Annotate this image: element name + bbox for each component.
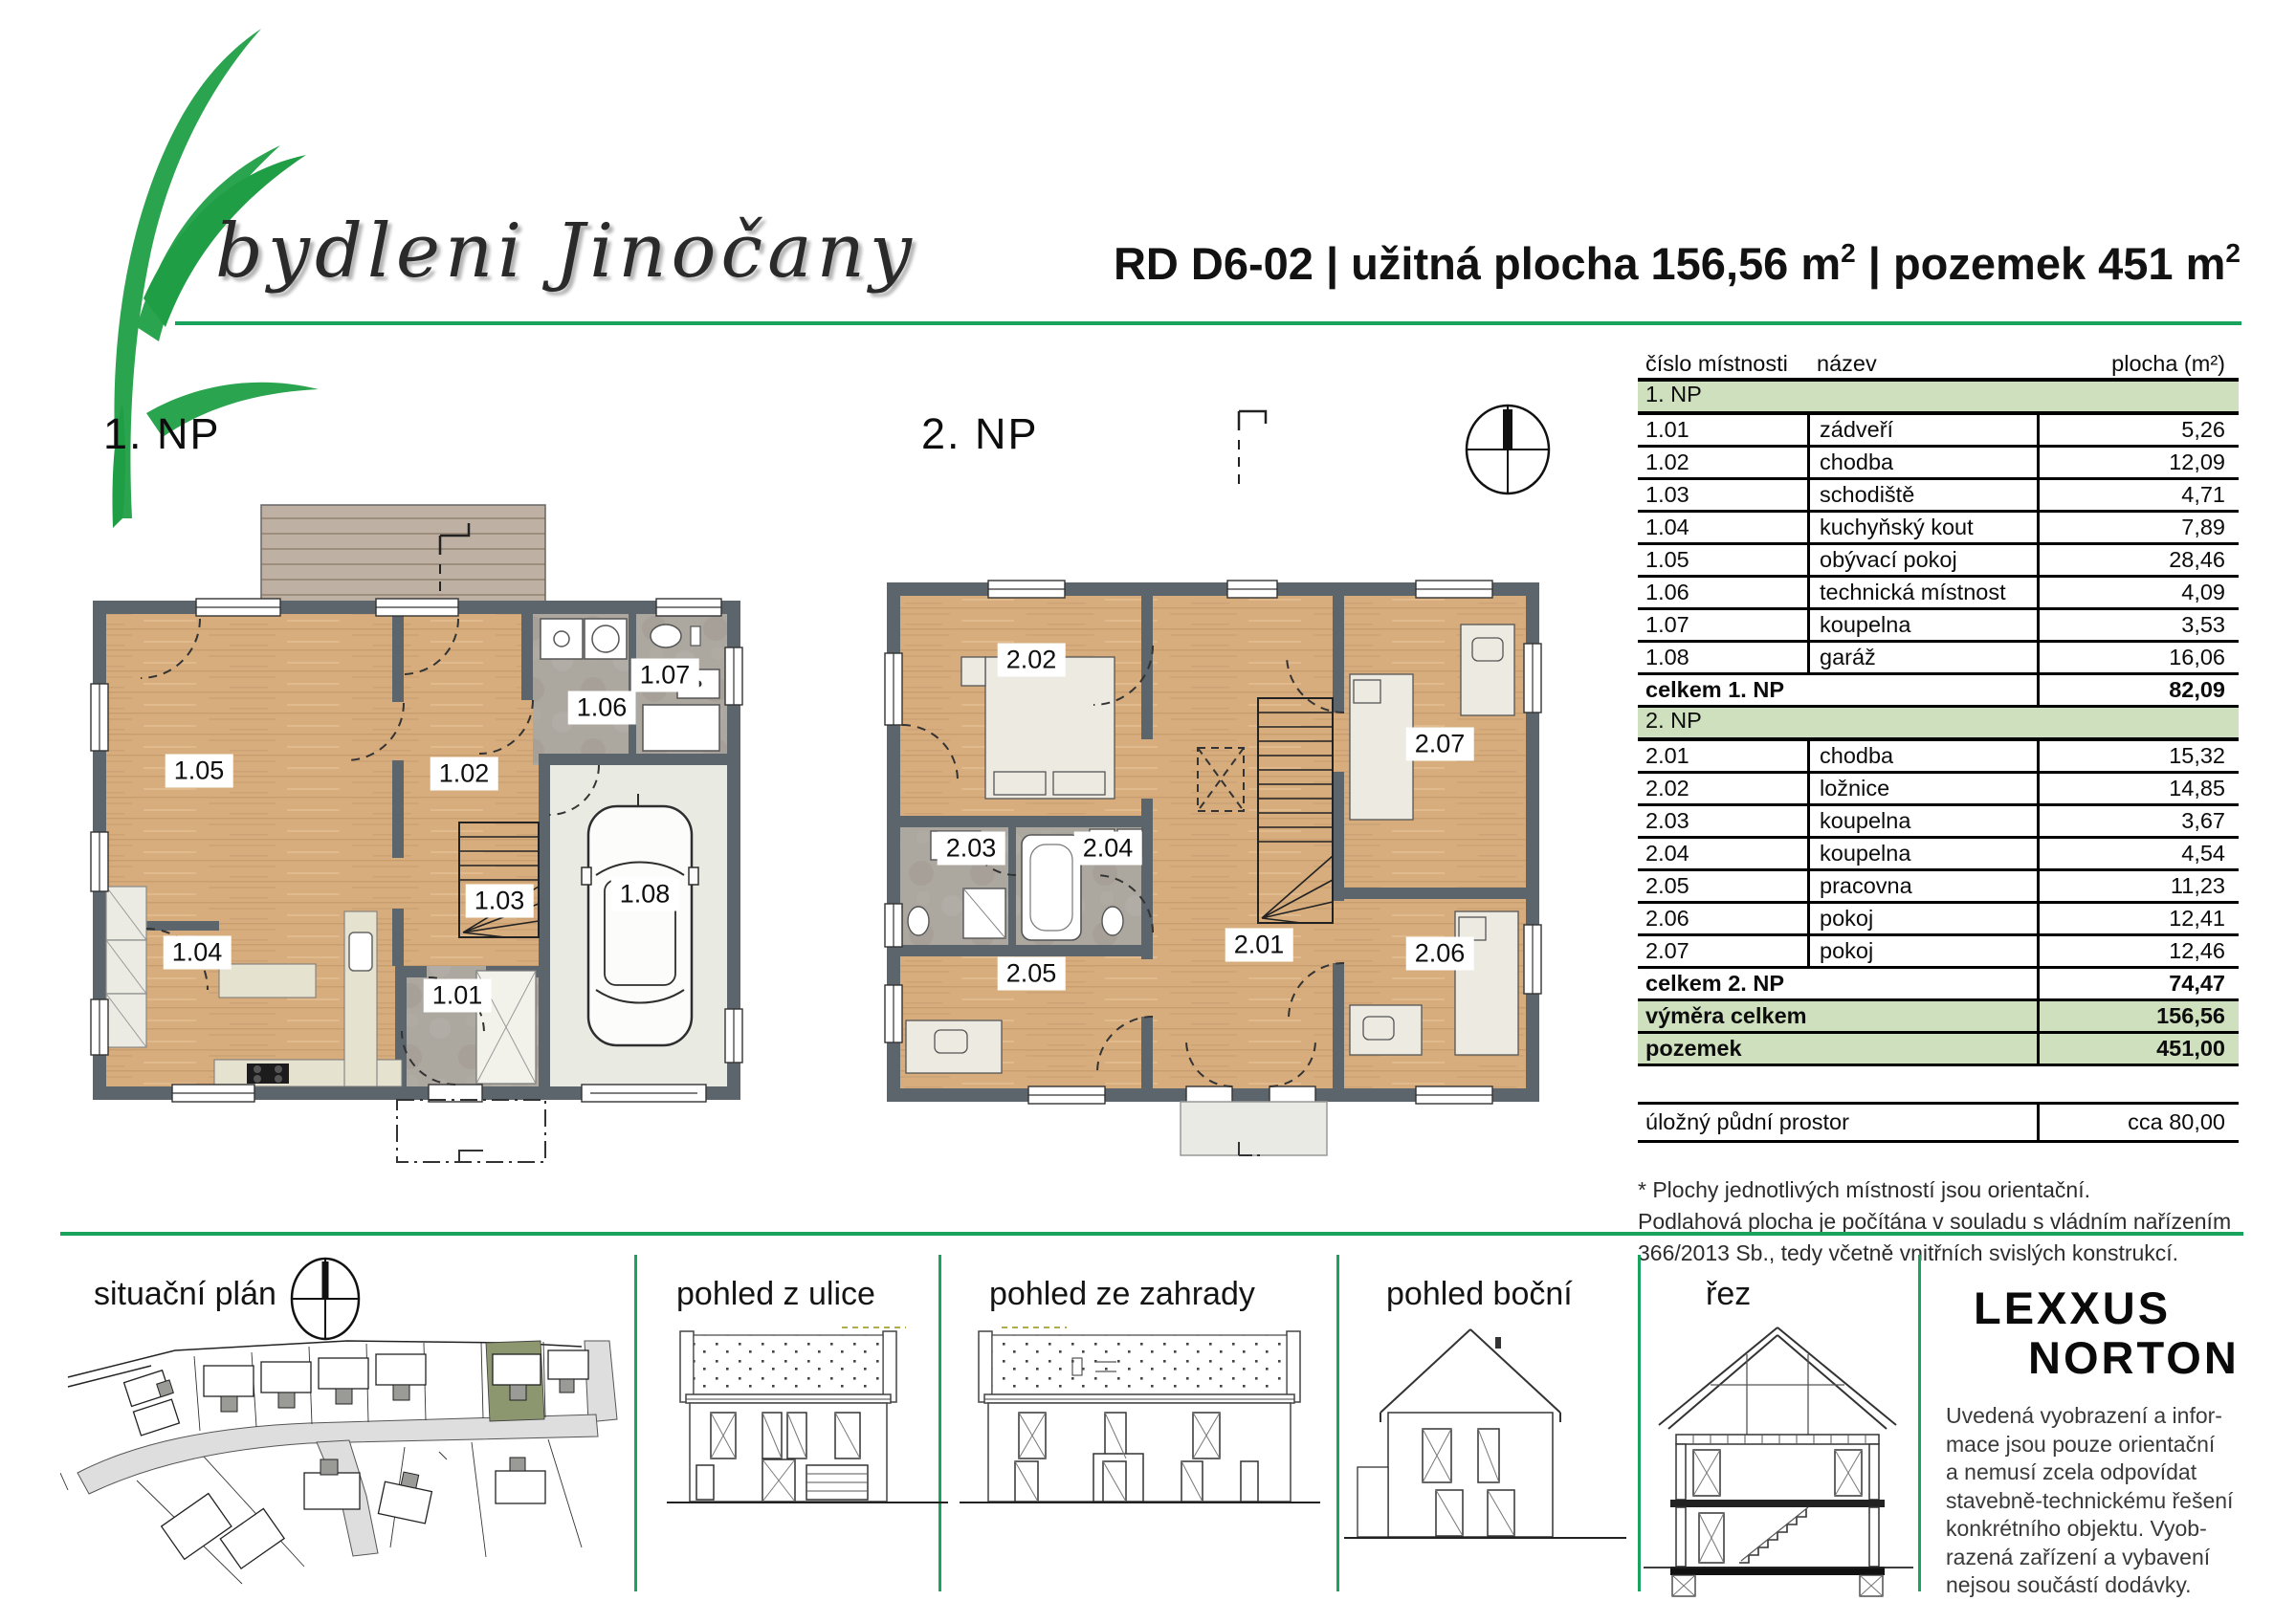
room-label: 2.02	[998, 644, 1066, 677]
table-header-row: číslo místnosti název plocha (m²)	[1638, 350, 2239, 382]
room-label: 2.03	[938, 832, 1005, 866]
table-row: 2.02ložnice14,85	[1638, 774, 2239, 806]
panel-divider	[634, 1255, 637, 1591]
room-label: 2.07	[1406, 728, 1474, 761]
garden-elevation-label: pohled ze zahrady	[989, 1276, 1255, 1313]
site-plan-label: situační plán	[94, 1276, 276, 1313]
col-header-name: název	[1807, 350, 2037, 378]
floor-plan-2np-drawing	[875, 397, 1602, 1172]
table-gap	[1638, 1066, 2239, 1102]
brand-logo: LEXXUS NORTON	[1974, 1283, 2240, 1383]
brand-line2: NORTON	[2028, 1333, 2240, 1383]
col-header-area: plocha (m²)	[2037, 350, 2233, 378]
title-part2: | pozemek 451 m	[1856, 238, 2226, 289]
title-part1: RD D6-02 | užitná plocha 156,56 m	[1114, 238, 1841, 289]
street-elevation-drawing	[665, 1322, 952, 1599]
room-label: 1.03	[466, 885, 534, 918]
table-row: 2.03koupelna3,67	[1638, 806, 2239, 839]
room-label: 2.06	[1406, 937, 1474, 971]
disclaimer-line: Uvedená vyobrazení a infor-	[1946, 1402, 2252, 1431]
header-divider	[175, 321, 2241, 325]
floor-plan-1np-drawing	[57, 397, 765, 1172]
panel-divider	[1918, 1255, 1921, 1591]
table-row: 1.03schodiště4,71	[1638, 480, 2239, 513]
attic-row: úložný půdní prostor cca 80,00	[1638, 1102, 2239, 1143]
room-label: 2.04	[1074, 832, 1142, 866]
panel-divider	[1336, 1255, 1339, 1591]
footnote-line: * Plochy jednotlivých místností jsou ori…	[1638, 1174, 2231, 1206]
disclaimer-line: nejsou součástí dodávky.	[1946, 1571, 2252, 1600]
street-elevation-label: pohled z ulice	[676, 1276, 875, 1313]
compass-icon	[1462, 402, 1554, 497]
room-label: 1.02	[430, 757, 498, 791]
footnote-line: 366/2013 Sb., tedy včetně vnitřních svis…	[1638, 1238, 2231, 1269]
title-sup1: 2	[1841, 238, 1856, 268]
disclaimer-text: Uvedená vyobrazení a infor- mace jsou po…	[1946, 1402, 2252, 1600]
section-drawing	[1644, 1322, 1916, 1599]
table-row: 1.02chodba12,09	[1638, 448, 2239, 480]
disclaimer-line: a nemusí zcela odpovídat	[1946, 1459, 2252, 1487]
table-row: 2.01chodba15,32	[1638, 741, 2239, 774]
section-band-2np: 2. NP	[1638, 708, 2239, 741]
logo-wordmark: bydleni Jinočany	[215, 208, 916, 295]
floor-plan-2np: 2.01 2.02 2.03 2.04 2.05 2.06 2.07	[875, 397, 1602, 1172]
room-area-table: číslo místnosti název plocha (m²) 1. NP …	[1638, 350, 2239, 1143]
room-label: 1.08	[611, 878, 679, 911]
col-header-number: číslo místnosti	[1638, 351, 1807, 377]
table-row: 2.07pokoj12,46	[1638, 936, 2239, 969]
room-label: 1.05	[166, 755, 233, 788]
room-label: 1.06	[568, 691, 636, 725]
disclaimer-line: konkrétního objektu. Vyob-	[1946, 1515, 2252, 1544]
disclaimer-line: razená zařízení a vybavení	[1946, 1544, 2252, 1572]
table-row: 1.06technická místnost4,09	[1638, 578, 2239, 610]
room-label: 2.01	[1225, 929, 1293, 962]
panel-divider	[1638, 1255, 1641, 1591]
room-label: 1.07	[631, 659, 699, 692]
disclaimer-line: mace jsou pouze orientační	[1946, 1431, 2252, 1459]
table-row: 1.05obývací pokoj28,46	[1638, 545, 2239, 578]
floor-plan-1np: 1.01 1.02 1.03 1.04 1.05 1.06 1.07 1.08	[57, 397, 765, 1172]
table-row: 2.05pracovna11,23	[1638, 871, 2239, 904]
table-footnote: * Plochy jednotlivých místností jsou ori…	[1638, 1174, 2231, 1269]
site-plan-drawing	[60, 1327, 634, 1593]
disclaimer-line: stavebně-technickému řešení	[1946, 1487, 2252, 1516]
total-row-1np: celkem 1. NP82,09	[1638, 675, 2239, 708]
table-row: 1.04kuchyňský kout7,89	[1638, 513, 2239, 545]
room-label: 1.01	[424, 979, 492, 1013]
room-label: 2.05	[998, 957, 1066, 991]
title-sup2: 2	[2225, 238, 2241, 268]
summary-row-plot: pozemek451,00	[1638, 1034, 2239, 1066]
table-row: 1.08garáž16,06	[1638, 643, 2239, 675]
table-row: 2.06pokoj12,41	[1638, 904, 2239, 936]
side-elevation-label: pohled boční	[1386, 1276, 1573, 1313]
section-band-1np: 1. NP	[1638, 382, 2239, 415]
page-title: RD D6-02 | užitná plocha 156,56 m2 | poz…	[1114, 237, 2241, 290]
total-row-2np: celkem 2. NP74,47	[1638, 969, 2239, 1001]
floorplan-sheet: { "header": { "logo_text": "bydleni Jino…	[0, 0, 2296, 1623]
table-row: 1.07koupelna3,53	[1638, 610, 2239, 643]
section-label: řez	[1706, 1276, 1751, 1313]
table-row: 1.01zádveří5,26	[1638, 415, 2239, 448]
table-row: 2.04koupelna4,54	[1638, 839, 2239, 871]
room-label: 1.04	[164, 936, 232, 970]
bottom-divider	[60, 1232, 2243, 1236]
summary-row-total-area: výměra celkem156,56	[1638, 1001, 2239, 1034]
brand-line1: LEXXUS	[1974, 1283, 2240, 1333]
side-elevation-drawing	[1344, 1322, 1631, 1599]
garden-elevation-drawing	[952, 1322, 1325, 1599]
